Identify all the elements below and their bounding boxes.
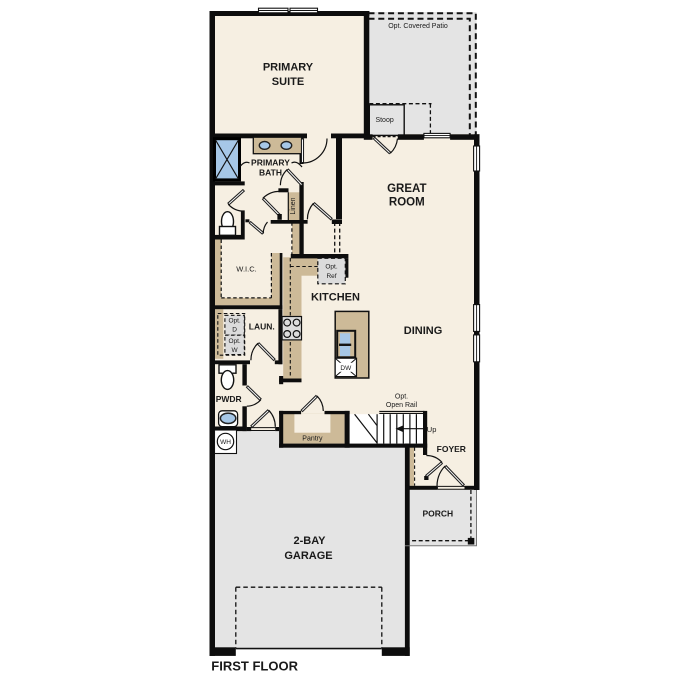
svg-text:Opt.: Opt.: [228, 318, 240, 325]
svg-text:WH: WH: [220, 439, 231, 446]
svg-text:SUITE: SUITE: [272, 76, 304, 88]
svg-text:Open Rail: Open Rail: [386, 402, 418, 409]
svg-text:D: D: [232, 327, 237, 334]
svg-text:LAUN.: LAUN.: [249, 322, 275, 332]
svg-text:W.I.C.: W.I.C.: [236, 265, 256, 274]
svg-text:PWDR: PWDR: [216, 394, 242, 404]
svg-text:Ref: Ref: [326, 273, 336, 280]
svg-text:Up: Up: [427, 425, 437, 434]
svg-text:PORCH: PORCH: [422, 509, 453, 519]
svg-text:Opt.: Opt.: [228, 338, 240, 345]
svg-text:Opt.: Opt.: [325, 264, 337, 271]
svg-text:Opt.: Opt.: [395, 393, 408, 400]
svg-text:2-BAY: 2-BAY: [294, 535, 327, 547]
svg-text:GREAT: GREAT: [387, 183, 426, 195]
svg-text:DINING: DINING: [404, 325, 443, 337]
svg-text:FIRST FLOOR: FIRST FLOOR: [211, 659, 298, 674]
svg-text:Linen: Linen: [290, 197, 297, 214]
svg-text:W: W: [232, 347, 239, 354]
svg-text:PRIMARY: PRIMARY: [263, 62, 314, 74]
svg-text:FOYER: FOYER: [437, 444, 466, 454]
svg-text:DW: DW: [340, 365, 352, 372]
svg-text:BATH: BATH: [259, 168, 282, 178]
svg-text:Stoop: Stoop: [375, 117, 393, 124]
svg-text:Pantry: Pantry: [302, 435, 323, 442]
svg-text:GARAGE: GARAGE: [284, 550, 332, 562]
svg-text:ROOM: ROOM: [389, 197, 425, 209]
svg-text:Opt. Covered Patio: Opt. Covered Patio: [388, 23, 448, 30]
svg-text:PRIMARY: PRIMARY: [251, 157, 290, 167]
svg-text:KITCHEN: KITCHEN: [311, 291, 360, 303]
